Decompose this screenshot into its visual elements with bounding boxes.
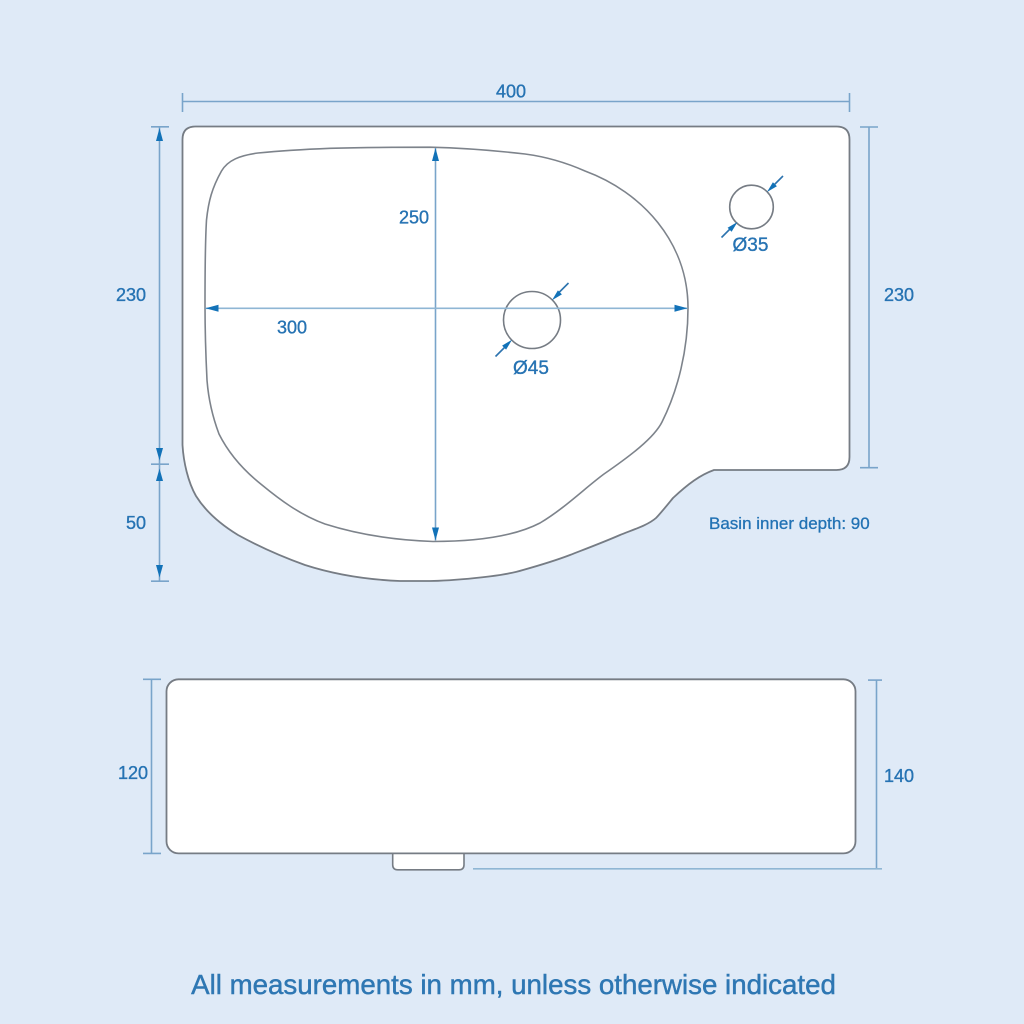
svg-text:300: 300 [277,318,307,338]
svg-text:230: 230 [884,285,914,305]
svg-text:140: 140 [884,766,914,786]
svg-text:Basin inner depth: 90: Basin inner depth: 90 [709,514,870,533]
svg-text:All measurements in mm, unless: All measurements in mm, unless otherwise… [191,969,836,1000]
svg-text:250: 250 [399,208,429,228]
svg-text:400: 400 [496,82,526,102]
svg-text:Ø35: Ø35 [733,235,769,256]
svg-text:230: 230 [116,285,146,305]
svg-text:120: 120 [118,763,148,783]
svg-text:Ø45: Ø45 [513,358,549,379]
svg-text:50: 50 [126,513,146,533]
